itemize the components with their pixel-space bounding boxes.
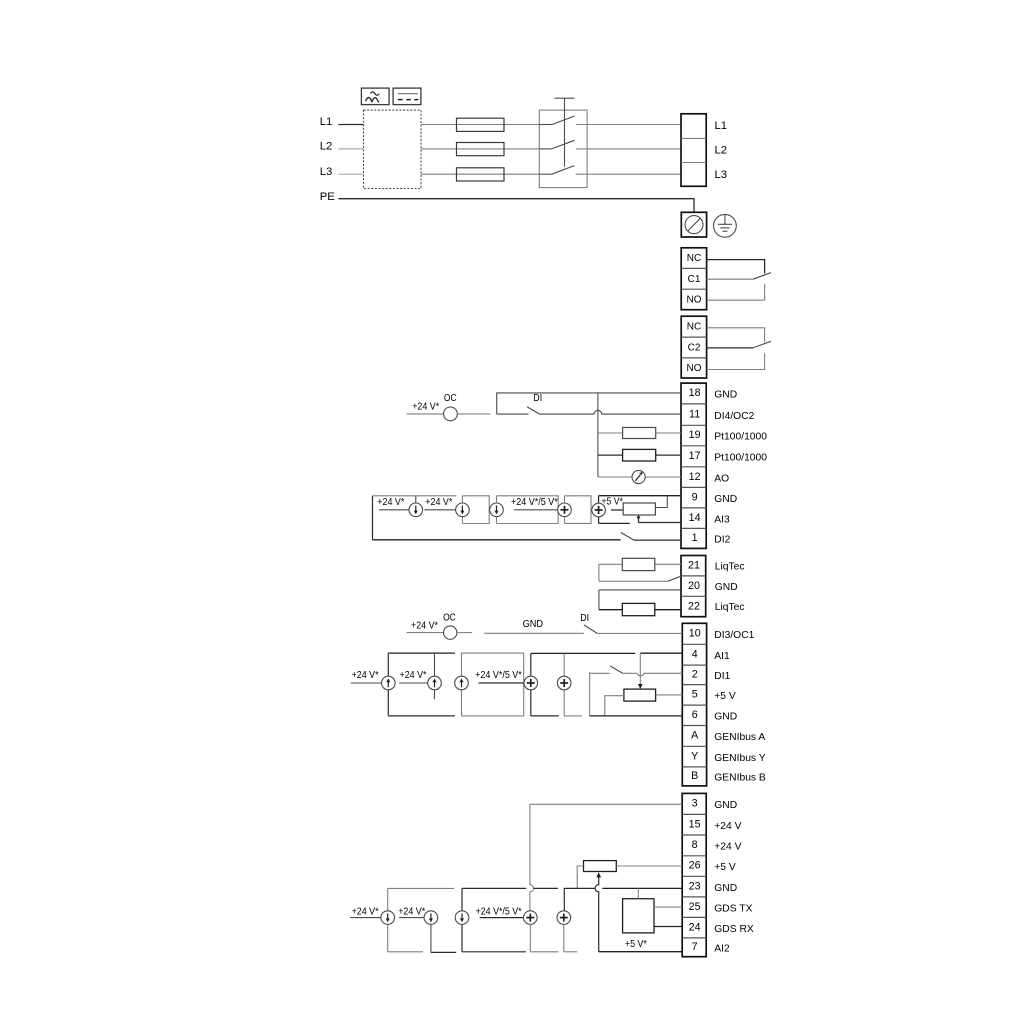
svg-text:+24 V*: +24 V* — [425, 497, 452, 508]
svg-text:+24 V*: +24 V* — [398, 906, 425, 917]
svg-text:+24 V*/5 V*: +24 V*/5 V* — [476, 906, 522, 917]
svg-text:+24 V*: +24 V* — [377, 497, 404, 508]
svg-text:+24 V*: +24 V* — [400, 670, 427, 681]
svg-text:+5 V*: +5 V* — [602, 496, 623, 507]
svg-text:GND: GND — [714, 390, 737, 401]
svg-text:GND: GND — [714, 712, 737, 723]
svg-text:14: 14 — [689, 512, 701, 524]
svg-text:OC: OC — [444, 393, 457, 404]
svg-text:+24 V*: +24 V* — [352, 906, 379, 917]
svg-text:Y: Y — [691, 750, 698, 762]
svg-text:L3: L3 — [320, 166, 333, 178]
svg-text:Pt100/1000: Pt100/1000 — [714, 453, 767, 464]
svg-text:AO: AO — [714, 473, 729, 484]
svg-text:+24 V*/5 V*: +24 V*/5 V* — [475, 670, 522, 681]
svg-text:NO: NO — [687, 363, 702, 374]
svg-text:+5 V: +5 V — [714, 691, 736, 702]
svg-text:23: 23 — [689, 880, 701, 892]
svg-text:OC: OC — [443, 613, 456, 624]
svg-text:NC: NC — [687, 322, 701, 333]
svg-text:7: 7 — [692, 941, 698, 953]
svg-text:22: 22 — [688, 601, 700, 613]
svg-text:GENIbus A: GENIbus A — [714, 732, 765, 743]
svg-text:1: 1 — [692, 532, 698, 544]
svg-text:GENIbus B: GENIbus B — [714, 773, 766, 784]
svg-text:+24 V*: +24 V* — [411, 620, 438, 631]
svg-text:9: 9 — [692, 491, 698, 503]
svg-text:DI: DI — [580, 613, 589, 624]
svg-text:+24 V: +24 V — [714, 842, 741, 853]
svg-text:+5 V*: +5 V* — [625, 939, 647, 950]
svg-text:C1: C1 — [688, 274, 701, 285]
svg-text:+24 V*/5 V*: +24 V*/5 V* — [511, 497, 558, 508]
svg-text:B: B — [691, 770, 698, 782]
svg-text:6: 6 — [692, 709, 698, 721]
svg-text:C2: C2 — [688, 343, 701, 354]
svg-text:3: 3 — [692, 798, 698, 810]
svg-text:11: 11 — [689, 408, 700, 420]
svg-text:L1: L1 — [320, 116, 333, 128]
svg-text:GDS TX: GDS TX — [714, 903, 752, 914]
svg-text:GND: GND — [715, 582, 738, 593]
svg-text:DI4/OC2: DI4/OC2 — [714, 411, 754, 422]
svg-text:15: 15 — [689, 818, 701, 830]
svg-text:L2: L2 — [715, 144, 728, 156]
svg-text:25: 25 — [689, 901, 701, 913]
svg-text:L3: L3 — [715, 169, 728, 181]
svg-text:DI: DI — [533, 393, 542, 404]
svg-text:+24 V: +24 V — [714, 821, 741, 832]
svg-text:+24 V*: +24 V* — [352, 670, 379, 681]
svg-text:A: A — [691, 730, 699, 742]
svg-text:Pt100/1000: Pt100/1000 — [714, 432, 767, 443]
svg-text:NC: NC — [687, 253, 701, 264]
svg-text:12: 12 — [689, 471, 701, 483]
svg-text:18: 18 — [689, 387, 701, 399]
svg-text:+5 V: +5 V — [714, 862, 736, 873]
svg-text:8: 8 — [692, 839, 698, 851]
svg-text:24: 24 — [689, 921, 701, 933]
svg-text:GDS RX: GDS RX — [714, 924, 754, 935]
svg-text:GND: GND — [714, 800, 737, 811]
svg-text:L1: L1 — [715, 120, 728, 132]
svg-text:+24 V*: +24 V* — [412, 401, 439, 412]
svg-text:AI1: AI1 — [714, 651, 730, 662]
svg-text:2: 2 — [692, 669, 698, 681]
svg-text:LiqTec: LiqTec — [715, 602, 745, 613]
svg-text:4: 4 — [692, 648, 698, 660]
svg-text:21: 21 — [688, 560, 700, 572]
svg-text:10: 10 — [689, 628, 701, 640]
svg-text:GND: GND — [714, 494, 737, 505]
svg-text:GENIbus Y: GENIbus Y — [714, 753, 765, 764]
svg-text:17: 17 — [689, 450, 701, 462]
svg-text:DI1: DI1 — [714, 671, 730, 682]
svg-text:5: 5 — [692, 689, 698, 701]
svg-text:20: 20 — [688, 580, 700, 592]
svg-text:GND: GND — [523, 619, 543, 630]
svg-text:DI3/OC1: DI3/OC1 — [714, 630, 754, 641]
svg-text:AI3: AI3 — [714, 514, 730, 525]
svg-text:PE: PE — [320, 191, 336, 203]
svg-text:19: 19 — [689, 429, 701, 441]
svg-text:26: 26 — [689, 860, 701, 872]
svg-text:NO: NO — [687, 295, 702, 306]
svg-text:AI2: AI2 — [714, 944, 730, 955]
svg-text:L2: L2 — [320, 141, 333, 153]
svg-text:GND: GND — [714, 883, 737, 894]
svg-text:DI2: DI2 — [714, 535, 730, 546]
svg-text:LiqTec: LiqTec — [715, 562, 745, 573]
